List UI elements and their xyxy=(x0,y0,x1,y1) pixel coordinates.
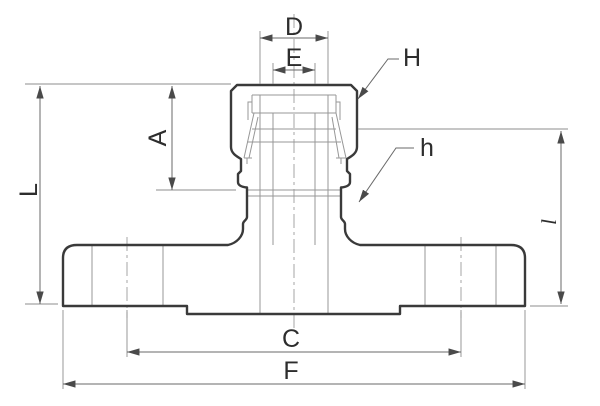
packing-follower xyxy=(244,113,346,164)
dimension-label-c: C xyxy=(282,325,300,353)
callout-H: H xyxy=(358,44,421,99)
dimension-label-e: E xyxy=(286,44,303,72)
dimension-l-extension-lines xyxy=(358,129,568,306)
valve-cross-section-drawing: D E H h A L l C F xyxy=(0,0,600,406)
dimension-A: A xyxy=(144,86,236,190)
callout-label-h-lower: h xyxy=(420,134,434,162)
dimension-l: l xyxy=(358,129,568,306)
technical-drawing-canvas: D E H h A L l C F xyxy=(0,0,600,406)
callout-h-leader xyxy=(359,148,414,202)
dimension-label-f: F xyxy=(283,357,298,385)
dimension-L: L xyxy=(15,84,231,304)
dimension-label-l-upper: L xyxy=(15,183,43,197)
dimension-L-extension-lines xyxy=(25,84,231,304)
callout-label-h-upper: H xyxy=(403,44,421,72)
callout-h: h xyxy=(359,134,434,202)
right-bolt-hole xyxy=(425,245,496,306)
bonnet-internals xyxy=(244,95,346,313)
left-bolt-hole xyxy=(92,245,163,306)
callout-H-leader xyxy=(358,59,399,99)
dimension-label-l-lower: l xyxy=(537,219,561,225)
dimension-label-a: A xyxy=(144,129,172,146)
dimension-label-d: D xyxy=(285,13,303,41)
